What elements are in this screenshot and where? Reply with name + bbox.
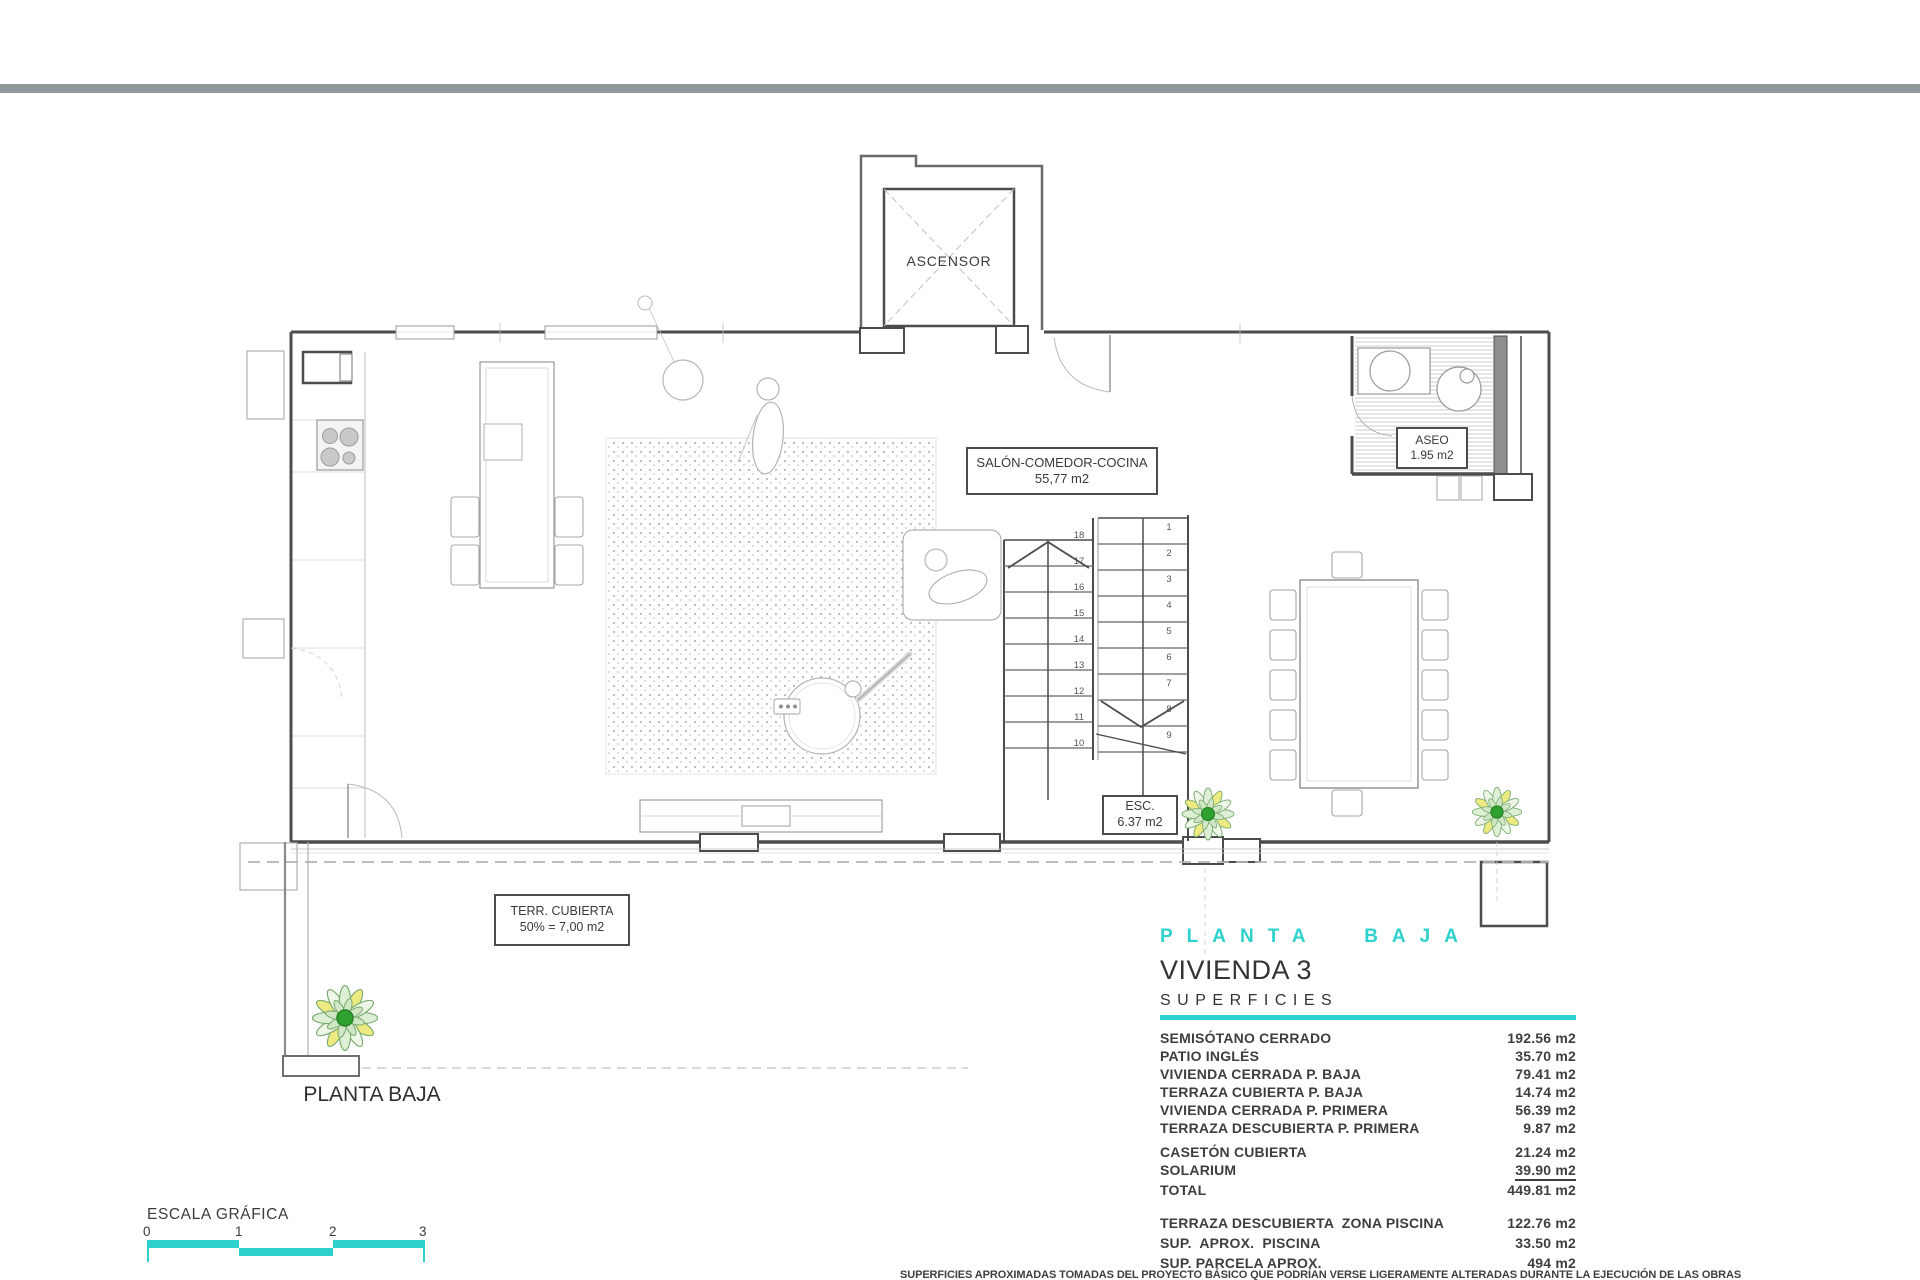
plant-icon: [1472, 787, 1521, 836]
large-dining-table: [1270, 552, 1448, 816]
scale-tick-label: 2: [329, 1224, 337, 1239]
svg-text:11: 11: [1074, 712, 1084, 723]
salon-label-line2: 55,77 m2: [968, 471, 1156, 487]
svg-text:9: 9: [1166, 730, 1171, 741]
surface-row: VIVIENDA CERRADA P. BAJA79.41 m2: [1160, 1065, 1576, 1083]
scale-title: ESCALA GRÁFICA: [147, 1206, 437, 1224]
disclaimer-text: SUPERFICIES APROXIMADAS TOMADAS DEL PROY…: [900, 1269, 1741, 1280]
scale-end-tick: [423, 1248, 425, 1262]
surface-row: VIVIENDA CERRADA P. PRIMERA56.39 m2: [1160, 1101, 1576, 1119]
rug-area: [606, 438, 936, 774]
esc-label-line1: ESC.: [1104, 799, 1176, 815]
surface-label: VIVIENDA CERRADA P. PRIMERA: [1160, 1101, 1515, 1119]
surface-label: VIVIENDA CERRADA P. BAJA: [1160, 1065, 1515, 1083]
surface-label: SUP. APROX. PISCINA: [1160, 1233, 1515, 1253]
scale-end-tick: [147, 1248, 149, 1262]
floor-title-label: PLANTA BAJA: [262, 1082, 482, 1108]
svg-text:15: 15: [1074, 608, 1085, 619]
surface-row: SEMISÓTANO CERRADO192.56 m2: [1160, 1029, 1576, 1047]
svg-text:5: 5: [1166, 626, 1171, 637]
svg-text:14: 14: [1074, 634, 1085, 645]
superficies-title: SUPERFICIES: [1160, 992, 1576, 1010]
graphic-scale: ESCALA GRÁFICA 0123: [147, 1206, 437, 1264]
surface-value: 122.76 m2: [1507, 1213, 1576, 1233]
svg-text:16: 16: [1074, 582, 1085, 593]
surface-row: CASETÓN CUBIERTA21.24 m2: [1160, 1143, 1576, 1161]
stair-left-numbers: 181716151413121110: [1074, 530, 1085, 749]
surfaces-extra-table: TERRAZA DESCUBIERTA ZONA PISCINA122.76 m…: [1160, 1213, 1576, 1273]
kitchen-door-arc: [291, 648, 342, 700]
surface-label: TERRAZA CUBIERTA P. BAJA: [1160, 1083, 1515, 1101]
corner-column: [1481, 862, 1547, 926]
terrace-door-arc: [348, 784, 402, 838]
svg-text:12: 12: [1074, 686, 1085, 697]
washbasin: [1370, 351, 1410, 391]
summary-panel: PLANTA BAJA VIVIENDA 3 SUPERFICIES SEMIS…: [1160, 926, 1576, 1273]
svg-text:18: 18: [1074, 530, 1085, 541]
svg-text:3: 3: [1166, 574, 1171, 585]
surface-row: TERRAZA DESCUBIERTA P. PRIMERA9.87 m2: [1160, 1119, 1576, 1137]
surface-label: TERRAZA DESCUBIERTA ZONA PISCINA: [1160, 1213, 1507, 1233]
surface-label: CASETÓN CUBIERTA: [1160, 1143, 1515, 1161]
surface-value: 79.41 m2: [1515, 1065, 1576, 1083]
svg-text:6: 6: [1166, 652, 1171, 663]
unit-title: VIVIENDA 3: [1160, 955, 1576, 986]
hanging-lamp: [663, 360, 703, 400]
scale-segment: [333, 1240, 425, 1248]
svg-text:17: 17: [1074, 556, 1085, 567]
surface-value: 192.56 m2: [1507, 1029, 1576, 1047]
surface-value: 33.50 m2: [1515, 1233, 1576, 1253]
aseo-label-line1: ASEO: [1398, 433, 1466, 448]
surface-row: SOLARIUM39.90 m2: [1160, 1161, 1576, 1181]
esc-label-box: ESC. 6.37 m2: [1102, 795, 1178, 835]
scale-tick-label: 1: [235, 1224, 243, 1239]
surface-value: 21.24 m2: [1515, 1143, 1576, 1161]
svg-text:7: 7: [1166, 678, 1171, 689]
surface-value: 35.70 m2: [1515, 1047, 1576, 1065]
aseo-label-line2: 1.95 m2: [1398, 448, 1466, 463]
svg-text:2: 2: [1166, 548, 1171, 559]
surface-row: PATIO INGLÉS35.70 m2: [1160, 1047, 1576, 1065]
scale-tick-label: 0: [143, 1224, 151, 1239]
scale-track: [147, 1240, 425, 1264]
terraza-label-box: TERR. CUBIERTA 50% = 7,00 m2: [494, 894, 630, 946]
surface-value: 9.87 m2: [1523, 1119, 1576, 1137]
scale-tick-labels: 0123: [147, 1224, 437, 1239]
surface-value: 449.81 m2: [1507, 1181, 1576, 1199]
teal-rule: [1160, 1015, 1576, 1020]
surface-label: SEMISÓTANO CERRADO: [1160, 1029, 1507, 1047]
esc-label-line2: 6.37 m2: [1104, 815, 1176, 831]
surface-label: TERRAZA DESCUBIERTA P. PRIMERA: [1160, 1119, 1523, 1137]
scale-tick-label: 3: [419, 1224, 427, 1239]
svg-text:8: 8: [1166, 704, 1171, 715]
plant-icon: [1182, 788, 1234, 840]
entry-door-arc: [1054, 337, 1110, 392]
salon-label-box: SALÓN-COMEDOR-COCINA 55,77 m2: [966, 447, 1158, 495]
svg-text:10: 10: [1074, 738, 1085, 749]
surface-label: TOTAL: [1160, 1181, 1507, 1199]
seated-person: [925, 549, 947, 571]
surface-value: 39.90 m2: [1515, 1161, 1576, 1181]
aseo-label-box: ASEO 1.95 m2: [1396, 427, 1468, 469]
terraza-label-line1: TERR. CUBIERTA: [496, 904, 628, 920]
surface-label: SOLARIUM: [1160, 1161, 1515, 1181]
small-dining-table: [451, 362, 583, 588]
surface-row: SUP. APROX. PISCINA33.50 m2: [1160, 1233, 1576, 1253]
scale-segment: [239, 1248, 333, 1256]
stair-right-numbers: 123456789: [1166, 522, 1171, 741]
kitchen: [293, 352, 365, 838]
ascensor-label: ASCENSOR: [893, 253, 1005, 271]
round-sink: [1437, 367, 1481, 411]
svg-text:13: 13: [1074, 660, 1085, 671]
svg-text:1: 1: [1166, 522, 1171, 533]
svg-text:4: 4: [1166, 600, 1171, 611]
plant-icon: [313, 986, 378, 1051]
scale-segment: [147, 1240, 239, 1248]
terraza-label-line2: 50% = 7,00 m2: [496, 920, 628, 936]
salon-label-line1: SALÓN-COMEDOR-COCINA: [968, 455, 1156, 471]
panel-floor-heading: PLANTA BAJA: [1160, 926, 1576, 948]
surface-row: TERRAZA CUBIERTA P. BAJA14.74 m2: [1160, 1083, 1576, 1101]
surface-label: PATIO INGLÉS: [1160, 1047, 1515, 1065]
surfaces-table: SEMISÓTANO CERRADO192.56 m2PATIO INGLÉS3…: [1160, 1029, 1576, 1199]
surface-value: 14.74 m2: [1515, 1083, 1576, 1101]
person-figure: [757, 378, 779, 400]
floorplan-page: 181716151413121110 123456789: [0, 0, 1920, 1280]
surface-row: TOTAL449.81 m2: [1160, 1181, 1576, 1199]
surface-value: 56.39 m2: [1515, 1101, 1576, 1119]
staircase: 181716151413121110 123456789: [1004, 515, 1188, 841]
surface-row: TERRAZA DESCUBIERTA ZONA PISCINA122.76 m…: [1160, 1213, 1576, 1233]
bathroom: [1352, 336, 1532, 500]
